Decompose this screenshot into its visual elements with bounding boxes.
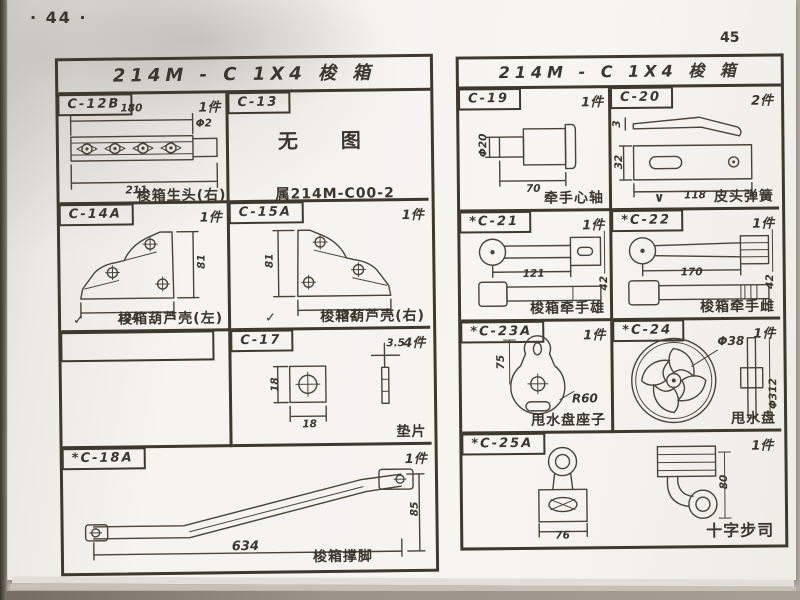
part-code: C-13: [227, 91, 290, 114]
part-caption: 垫片: [396, 421, 426, 441]
dim-121: 121: [523, 268, 545, 280]
cell-c22: *C-22 1件 170 42 梭箱牵手雌: [612, 209, 780, 321]
part-caption: 梭箱生头(右): [137, 184, 227, 205]
dim-phi2: Φ2: [196, 117, 212, 129]
part-caption: 甩水盘座子: [531, 409, 606, 430]
dim-phi312: Φ312: [767, 378, 779, 409]
part-caption: 牵手心轴: [544, 187, 604, 208]
check-mark: ✓: [265, 311, 276, 326]
dim-3p5: 3.5: [386, 337, 405, 349]
dim-118: 118: [684, 189, 706, 201]
dim-180: 180: [120, 102, 142, 114]
dim-32: 32: [613, 155, 625, 170]
cell-c18a: *C-18A 1件 634 85 梭箱撑脚: [63, 445, 433, 570]
dim-70: 70: [526, 183, 541, 195]
empty-label-box: [60, 330, 214, 362]
cell-c15a: C-15A 1件 124 81 ✓ 梭箱葫芦壳(右): [230, 201, 431, 331]
cell-c21: *C-21 1件 121 42 梭箱牵手雄: [460, 211, 613, 322]
part-caption: 梭箱葫芦壳(左): [118, 307, 223, 328]
cell-c17: C-17 4件 18 18 3.5 垫片: [231, 329, 431, 447]
cell-empty: [61, 331, 232, 449]
check-mark: ∨: [654, 191, 665, 206]
dim-18-w: 18: [302, 418, 317, 430]
dim-76: 76: [555, 530, 570, 542]
page-number-44: · 44 ·: [30, 8, 88, 27]
dim-r60: R60: [572, 391, 598, 405]
cell-c20: C-20 2件 3 32 118 ∨ 皮头弹簧: [611, 86, 779, 211]
dim-phi20: Φ20: [477, 133, 489, 157]
cell-c25a: *C-25A 1件 76 80 十字步司: [462, 432, 779, 545]
no-figure-text: 无 图: [229, 123, 428, 154]
cell-c12b: C-12B 1件 180 Φ2 211 梭箱生头(右): [58, 93, 229, 205]
dim-42: 42: [598, 276, 610, 291]
part-caption: 甩水盘: [731, 408, 776, 428]
dim-18-h: 18: [269, 377, 281, 392]
dim-80: 80: [718, 475, 730, 490]
dim-81: 81: [264, 253, 276, 268]
table-title: 214M - C 1X4 梭 箱: [58, 57, 430, 96]
part-caption: 十字步司: [706, 517, 774, 542]
dim-85: 85: [409, 502, 421, 517]
dim-phi38: Φ38: [717, 334, 744, 348]
part-caption: 梭箱葫芦壳(右): [320, 305, 425, 326]
part-caption: 梭箱牵手雌: [700, 296, 775, 317]
dim-81: 81: [196, 254, 208, 269]
book-spine-shadow: [0, 0, 8, 600]
check-mark: ✓: [73, 313, 84, 328]
cell-c14a: C-14A 1件 124 81 ✓ 梭箱葫芦壳(左): [60, 203, 232, 333]
cell-c23a: *C-23A 1件 75 R60 甩水盘座子: [461, 321, 614, 434]
parts-table-page-44: 214M - C 1X4 梭 箱 C-12B 1件 180 Φ2 211 梭箱生…: [55, 54, 439, 577]
dim-75: 75: [495, 355, 507, 370]
dim-170: 170: [681, 266, 703, 278]
dim-3: 3: [611, 120, 623, 127]
cell-c24: *C-24 1件 Φ38 Φ312 甩水盘: [613, 319, 781, 433]
part-caption: 梭箱牵手雄: [530, 297, 605, 318]
part-caption: 皮头弹簧: [714, 186, 774, 207]
table-title: 214M - C 1X4 梭 箱: [459, 56, 781, 89]
page-stack-shadow: [6, 591, 800, 600]
dim-42: 42: [764, 274, 776, 289]
parts-table-page-45: 214M - C 1X4 梭 箱 C-19 1件 Φ20 70 牵手心轴 C-2…: [456, 53, 789, 550]
dim-634: 634: [232, 539, 259, 554]
cell-c19: C-19 1件 Φ20 70 牵手心轴: [459, 88, 612, 212]
part-caption: 梭箱撑脚: [313, 545, 373, 566]
cell-c13: C-13 无 图 属214M-C00-2: [228, 91, 428, 203]
page-number-45: 45: [720, 30, 739, 46]
